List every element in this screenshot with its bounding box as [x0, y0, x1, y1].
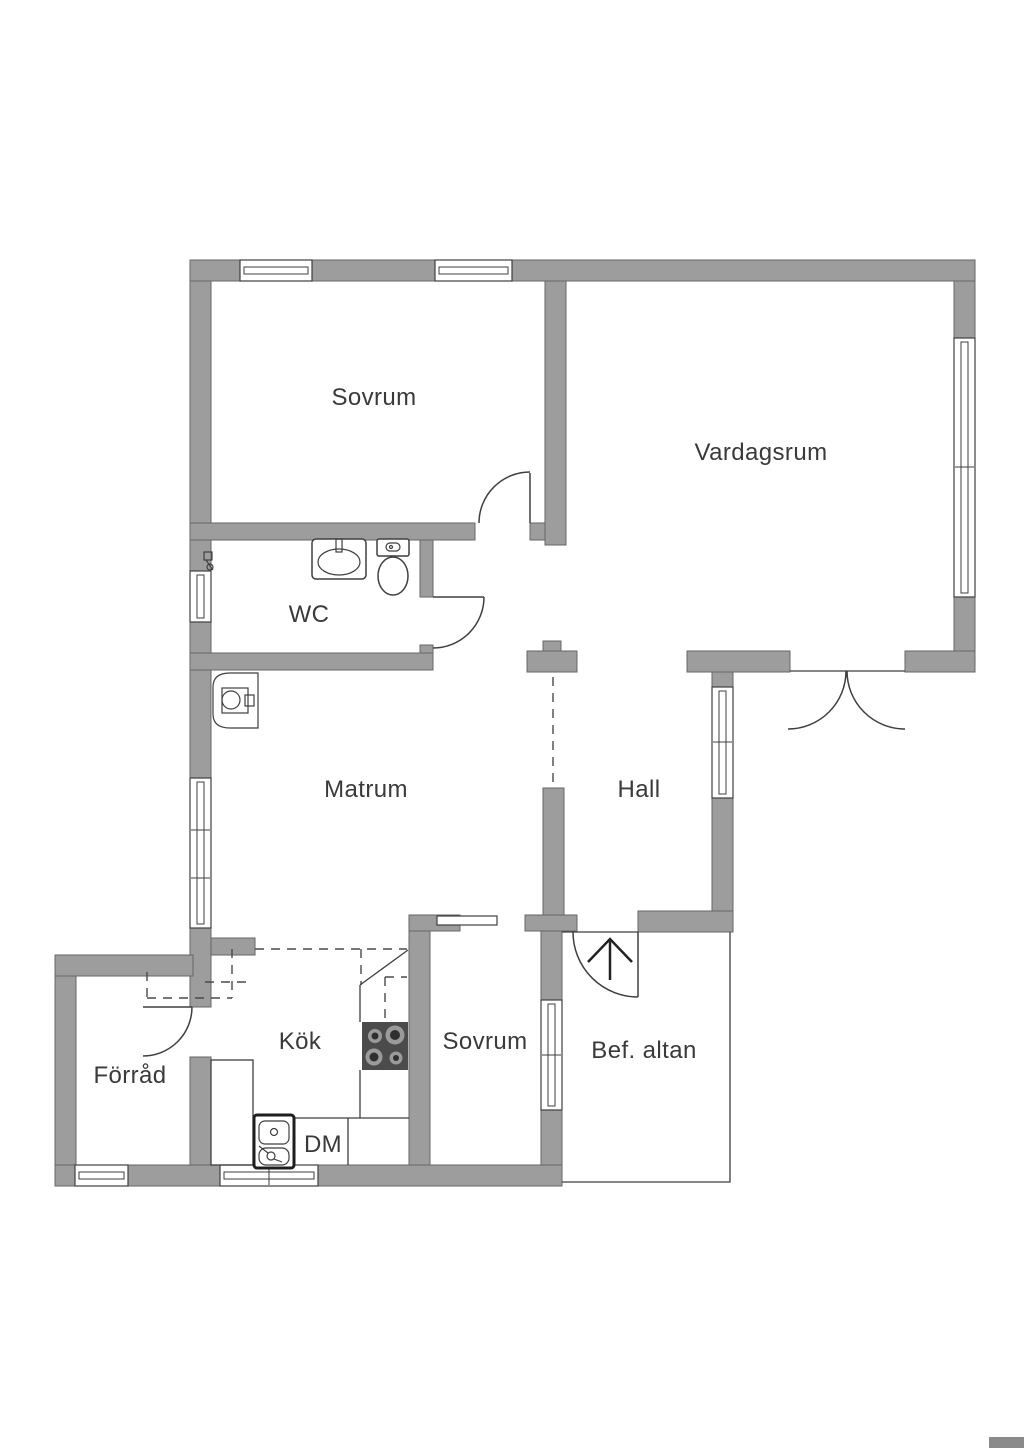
entrance-arrow-icon [588, 939, 632, 980]
door-entrance [573, 932, 638, 997]
window [240, 260, 312, 281]
floor-plan-drawing: Sovrum Vardagsrum WC Matrum Hall Kök Sov… [0, 0, 1024, 1448]
room-label-forrad: Förråd [93, 1062, 166, 1089]
washbasin-icon [312, 539, 366, 579]
window [75, 1165, 128, 1186]
door-french-vardagsrum [788, 671, 905, 729]
floor-plan-page: Sovrum Vardagsrum WC Matrum Hall Kök Sov… [0, 0, 1024, 1448]
stove-icon [362, 1022, 408, 1070]
room-label-wc: WC [289, 601, 330, 628]
room-label-hall: Hall [618, 776, 661, 803]
window [190, 778, 211, 928]
water-heater-icon [213, 673, 258, 728]
watermark-logo [989, 1437, 1024, 1448]
room-label-sovrum2: Sovrum [442, 1028, 527, 1055]
toilet-icon [377, 539, 409, 595]
window [541, 1000, 562, 1110]
window [190, 571, 211, 622]
door-forrad [143, 1007, 192, 1056]
door-sovrum1 [479, 472, 530, 523]
kitchen-sink-icon [254, 1115, 294, 1168]
room-label-matrum: Matrum [324, 776, 408, 803]
room-label-sovrum1: Sovrum [331, 384, 416, 411]
doors [143, 472, 905, 1056]
window [954, 338, 975, 597]
window [712, 687, 733, 798]
dishwasher-label: DM [304, 1131, 342, 1158]
sliding-door-icon [437, 916, 497, 925]
window [435, 260, 512, 281]
room-label-bef-altan: Bef. altan [591, 1037, 696, 1064]
door-wc [433, 597, 484, 648]
room-label-vardagsrum: Vardagsrum [695, 439, 828, 466]
room-label-kok: Kök [279, 1028, 322, 1055]
